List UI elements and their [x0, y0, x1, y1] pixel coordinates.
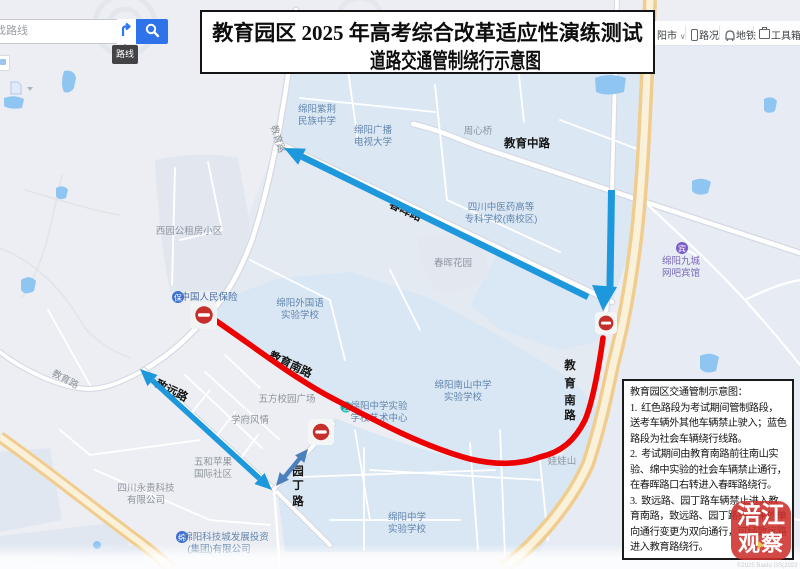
svg-text:教: 教	[563, 358, 576, 372]
svg-text:路: 路	[292, 494, 304, 508]
svg-text:绵阳科技城发展投资: 绵阳科技城发展投资	[183, 531, 269, 543]
svg-text:绵阳广播: 绵阳广播	[354, 124, 393, 136]
svg-text:丁: 丁	[292, 479, 304, 492]
svg-text:专科学校(南校区): 专科学校(南校区)	[465, 213, 538, 225]
svg-text:实验学校: 实验学校	[388, 523, 427, 535]
svg-text:实验学校: 实验学校	[281, 309, 320, 321]
svg-text:五方校园广场: 五方校园广场	[258, 393, 315, 405]
svg-text:中国人民保险: 中国人民保险	[180, 291, 238, 303]
svg-text:实验学校: 实验学校	[444, 391, 483, 403]
svg-text:网吧宾馆: 网吧宾馆	[662, 267, 700, 279]
svg-text:绵阳九城: 绵阳九城	[662, 255, 701, 267]
svg-text:南: 南	[564, 393, 576, 407]
svg-text:绵阳南山中学: 绵阳南山中学	[434, 379, 491, 391]
svg-text:路: 路	[564, 408, 576, 422]
svg-text:绵阳中学: 绵阳中学	[388, 511, 426, 523]
svg-text:电视大学: 电视大学	[354, 136, 392, 148]
svg-text:娃娃山: 娃娃山	[548, 455, 577, 467]
svg-text:民族中学: 民族中学	[298, 115, 336, 127]
svg-text:春晖花园: 春晖花园	[434, 257, 472, 269]
svg-text:西园公租房小区: 西园公租房小区	[156, 225, 223, 237]
svg-text:学府风情: 学府风情	[231, 414, 270, 426]
svg-text:有限公司: 有限公司	[127, 494, 165, 506]
svg-text:周心桥: 周心桥	[464, 125, 493, 137]
svg-text:宾: 宾	[678, 244, 686, 254]
svg-text:教育中路: 教育中路	[503, 136, 550, 150]
svg-text:育: 育	[564, 376, 576, 390]
svg-text:四川永贵科技: 四川永贵科技	[117, 482, 175, 494]
svg-text:绵阳外国语: 绵阳外国语	[276, 297, 324, 309]
svg-text:国际社区: 国际社区	[194, 468, 233, 480]
svg-text:五和苹果: 五和苹果	[194, 456, 233, 468]
svg-text:四川中医药高等: 四川中医药高等	[468, 201, 535, 213]
svg-text:绵阳紫荆: 绵阳紫荆	[298, 103, 336, 115]
